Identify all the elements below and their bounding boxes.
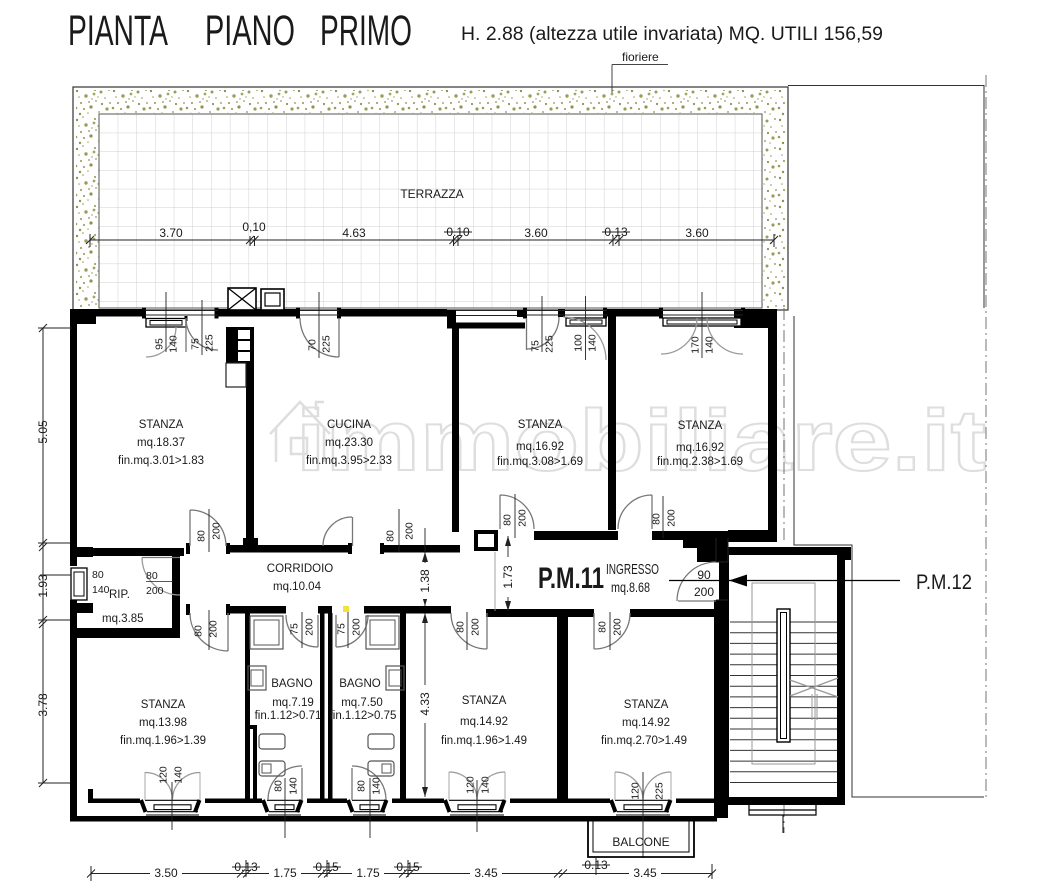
- svg-text:170: 170: [690, 336, 702, 354]
- svg-text:140: 140: [288, 777, 300, 795]
- svg-text:80: 80: [502, 514, 514, 526]
- svg-text:P.M.11: P.M.11: [538, 562, 604, 595]
- svg-text:mq.16.92: mq.16.92: [516, 441, 564, 453]
- svg-text:mq.23.30: mq.23.30: [325, 437, 373, 449]
- svg-text:STANZA: STANZA: [678, 420, 723, 432]
- svg-text:CORRIDOIO: CORRIDOIO: [267, 563, 334, 575]
- svg-text:120: 120: [158, 766, 170, 784]
- svg-text:PIANO: PIANO: [205, 7, 295, 55]
- svg-text:mq.7.19: mq.7.19: [272, 697, 314, 709]
- svg-text:CUCINA: CUCINA: [327, 419, 371, 431]
- svg-text:80: 80: [193, 625, 205, 637]
- svg-text:fin.mq.3.95>2.33: fin.mq.3.95>2.33: [306, 455, 392, 467]
- svg-text:mq.16.92: mq.16.92: [676, 442, 724, 454]
- svg-text:200: 200: [211, 522, 223, 540]
- svg-text:90: 90: [697, 568, 711, 582]
- svg-text:0,10: 0,10: [242, 220, 266, 234]
- svg-text:TERRAZZA: TERRAZZA: [400, 187, 463, 201]
- svg-text:BAGNO: BAGNO: [339, 678, 381, 690]
- svg-text:75: 75: [289, 623, 301, 635]
- svg-text:80: 80: [651, 513, 663, 525]
- svg-text:140: 140: [92, 584, 110, 596]
- svg-text:100: 100: [573, 334, 585, 352]
- svg-text:STANZA: STANZA: [139, 419, 184, 431]
- svg-text:BAGNO: BAGNO: [271, 678, 313, 690]
- svg-text:120: 120: [465, 776, 477, 794]
- svg-text:3.78: 3.78: [36, 693, 50, 717]
- svg-text:80: 80: [356, 780, 368, 792]
- svg-text:5.05: 5.05: [36, 420, 50, 444]
- svg-text:3.45: 3.45: [633, 866, 657, 880]
- svg-text:140: 140: [587, 334, 599, 352]
- svg-text:200: 200: [304, 618, 316, 636]
- svg-text:200: 200: [404, 522, 416, 540]
- svg-text:BALCONE: BALCONE: [612, 835, 669, 849]
- svg-text:1.38: 1.38: [418, 569, 432, 593]
- svg-text:H. 2.88 (altezza utile invari: H. 2.88 (altezza utile invariata) MQ. UT…: [461, 24, 883, 45]
- svg-text:mq.13.98: mq.13.98: [139, 717, 187, 729]
- svg-text:fioriere: fioriere: [622, 50, 659, 64]
- svg-text:STANZA: STANZA: [462, 695, 507, 707]
- svg-text:3.60: 3.60: [685, 226, 709, 240]
- svg-text:fin.1.12>0.71: fin.1.12>0.71: [255, 710, 322, 722]
- svg-text:4.63: 4.63: [342, 226, 366, 240]
- svg-text:140: 140: [480, 776, 492, 794]
- svg-text:fin.1.12>0.75: fin.1.12>0.75: [330, 710, 397, 722]
- svg-text:200: 200: [351, 618, 363, 636]
- svg-text:0.10: 0.10: [446, 225, 470, 239]
- svg-text:INGRESSO: INGRESSO: [606, 561, 659, 578]
- svg-text:75: 75: [336, 623, 348, 635]
- svg-text:200: 200: [517, 509, 529, 527]
- svg-text:80: 80: [597, 621, 609, 633]
- svg-text:140: 140: [168, 335, 180, 353]
- svg-text:225: 225: [544, 335, 556, 353]
- svg-text:200: 200: [666, 509, 678, 527]
- svg-text:200: 200: [612, 618, 624, 636]
- svg-text:mq.8.68: mq.8.68: [611, 580, 650, 595]
- svg-text:80: 80: [92, 569, 104, 581]
- svg-text:200: 200: [694, 585, 714, 599]
- svg-text:fin.mq.1.96>1.39: fin.mq.1.96>1.39: [120, 735, 206, 747]
- svg-text:3.60: 3.60: [524, 226, 548, 240]
- svg-text:1.93: 1.93: [36, 574, 50, 598]
- svg-text:200: 200: [146, 585, 164, 597]
- svg-text:STANZA: STANZA: [624, 699, 669, 711]
- svg-text:120: 120: [630, 782, 642, 800]
- svg-text:fin.mq.2.38>1.69: fin.mq.2.38>1.69: [657, 456, 743, 468]
- svg-text:75: 75: [530, 340, 542, 352]
- svg-text:mq.7.50: mq.7.50: [341, 697, 383, 709]
- svg-text:mq.3.85: mq.3.85: [102, 613, 144, 625]
- svg-text:1.73: 1.73: [501, 565, 515, 589]
- svg-text:1.75: 1.75: [273, 866, 297, 880]
- svg-text:140: 140: [704, 336, 716, 354]
- svg-text:immobiliare.it: immobiliare.it: [296, 393, 986, 489]
- svg-text:80: 80: [273, 780, 285, 792]
- svg-text:70: 70: [307, 339, 319, 351]
- svg-text:75: 75: [190, 338, 202, 350]
- svg-text:80: 80: [146, 570, 158, 582]
- svg-text:225: 225: [321, 335, 333, 353]
- svg-text:80: 80: [385, 530, 397, 542]
- svg-text:3.50: 3.50: [154, 866, 178, 880]
- svg-text:3.70: 3.70: [159, 226, 183, 240]
- svg-text:140: 140: [173, 766, 185, 784]
- svg-text:3.45: 3.45: [474, 866, 498, 880]
- svg-text:PIANTA: PIANTA: [68, 7, 168, 55]
- svg-text:fin.mq.1.96>1.49: fin.mq.1.96>1.49: [441, 735, 527, 747]
- svg-text:fin.mq.3.01>1.83: fin.mq.3.01>1.83: [118, 455, 204, 467]
- svg-text:0.13: 0.13: [604, 225, 628, 239]
- svg-text:P.M.12: P.M.12: [916, 571, 972, 594]
- svg-text:mq.14.92: mq.14.92: [622, 717, 670, 729]
- svg-text:225: 225: [204, 334, 216, 352]
- svg-text:95: 95: [154, 338, 166, 350]
- svg-text:200: 200: [470, 618, 482, 636]
- svg-text:4.33: 4.33: [418, 692, 432, 716]
- svg-text:fin.mq.3.08>1.69: fin.mq.3.08>1.69: [497, 456, 583, 468]
- svg-text:PRIMO: PRIMO: [320, 7, 412, 55]
- svg-text:225: 225: [654, 782, 666, 800]
- svg-text:mq.18.37: mq.18.37: [137, 437, 185, 449]
- svg-text:80: 80: [455, 621, 467, 633]
- svg-text:STANZA: STANZA: [518, 419, 563, 431]
- svg-text:STANZA: STANZA: [141, 699, 186, 711]
- svg-text:fin.mq.2.70>1.49: fin.mq.2.70>1.49: [601, 735, 687, 747]
- svg-text:mq.14.92: mq.14.92: [460, 716, 508, 728]
- svg-text:RIP.: RIP.: [109, 589, 130, 601]
- svg-text:80: 80: [196, 530, 208, 542]
- svg-text:140: 140: [371, 777, 383, 795]
- svg-text:mq.10.04: mq.10.04: [273, 581, 322, 593]
- svg-text:1.75: 1.75: [356, 866, 380, 880]
